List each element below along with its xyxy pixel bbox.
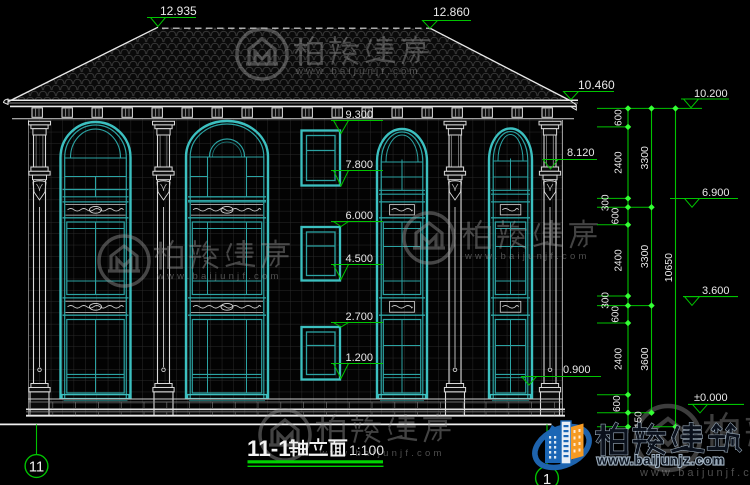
svg-text:6.000: 6.000 — [346, 210, 374, 222]
svg-text:www.baijunjf.com: www.baijunjf.com — [156, 271, 282, 282]
svg-text:2400: 2400 — [614, 347, 625, 370]
svg-text:2.700: 2.700 — [346, 311, 374, 323]
svg-text:6.900: 6.900 — [702, 187, 730, 199]
svg-text:12.935: 12.935 — [160, 4, 197, 18]
svg-text:600: 600 — [614, 109, 625, 126]
svg-text:www.baijunjz.com: www.baijunjz.com — [596, 453, 725, 468]
svg-text:11: 11 — [29, 459, 45, 476]
svg-text:3300: 3300 — [639, 245, 651, 269]
svg-text:www.baijunjf.com: www.baijunjf.com — [295, 66, 421, 77]
svg-text:1: 1 — [543, 471, 551, 485]
svg-text:±0.000: ±0.000 — [694, 392, 728, 404]
svg-text:7.800: 7.800 — [346, 159, 374, 171]
svg-text:3600: 3600 — [639, 347, 651, 371]
svg-text:10.200: 10.200 — [694, 88, 728, 100]
svg-text:1:100: 1:100 — [349, 442, 384, 458]
svg-text:9.300: 9.300 — [346, 109, 374, 121]
svg-text:www.baijunjf.com: www.baijunjf.com — [639, 467, 750, 479]
svg-text:2400: 2400 — [614, 151, 625, 174]
svg-text:10650: 10650 — [663, 253, 675, 282]
svg-text:1.200: 1.200 — [346, 352, 374, 364]
svg-text:8.120: 8.120 — [567, 147, 595, 159]
svg-text:600: 600 — [611, 306, 622, 323]
svg-text:11-1: 11-1 — [247, 436, 291, 461]
svg-text:2400: 2400 — [614, 249, 625, 272]
svg-text:12.860: 12.860 — [433, 5, 470, 19]
svg-text:600: 600 — [611, 207, 622, 224]
svg-text:0.900: 0.900 — [563, 364, 591, 376]
svg-text:3.600: 3.600 — [702, 285, 730, 297]
svg-text:3300: 3300 — [639, 146, 651, 170]
svg-text:4.500: 4.500 — [346, 253, 374, 265]
svg-text:600: 600 — [612, 395, 623, 412]
svg-text:10.460: 10.460 — [578, 78, 615, 92]
svg-text:www.baijunjf.com: www.baijunjf.com — [464, 251, 590, 262]
